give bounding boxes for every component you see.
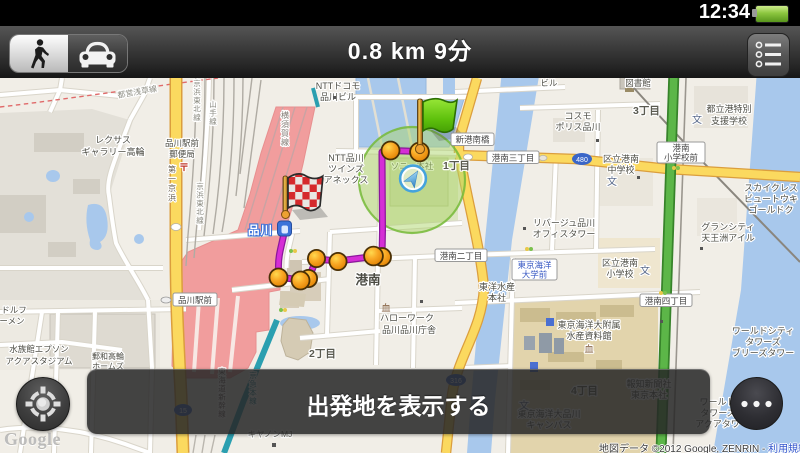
svg-text:東京海洋: 東京海洋 <box>517 260 552 270</box>
svg-text:小学校: 小学校 <box>606 268 633 279</box>
svg-text:港南二丁目: 港南二丁目 <box>440 251 483 261</box>
svg-text:第一京浜: 第一京浜 <box>168 164 176 203</box>
svg-text:1丁目: 1丁目 <box>443 160 470 172</box>
svg-text:京浜東北線: 京浜東北線 <box>196 182 204 225</box>
svg-text:NTTドコモ: NTTドコモ <box>316 81 361 91</box>
svg-text:3丁目: 3丁目 <box>633 105 660 117</box>
svg-text:ブリーズタワー: ブリーズタワー <box>732 347 795 358</box>
svg-text:水産資料館: 水産資料館 <box>566 330 611 341</box>
svg-text:東京海洋大附属: 東京海洋大附属 <box>557 319 620 330</box>
svg-text:中学校: 中学校 <box>607 164 634 175</box>
svg-text:ーメン: ーメン <box>0 316 25 326</box>
svg-text:ギャラリー高輪: ギャラリー高輪 <box>81 146 144 157</box>
svg-text:品川品川庁舎: 品川品川庁舎 <box>382 325 436 335</box>
svg-text:山手線: 山手線 <box>209 100 217 126</box>
svg-text:区立港南: 区立港南 <box>603 153 639 164</box>
svg-text:品川駅前: 品川駅前 <box>165 138 200 148</box>
svg-text:コスモ: コスモ <box>564 111 591 121</box>
svg-text:図書館: 図書館 <box>625 78 651 88</box>
svg-text:2丁目: 2丁目 <box>309 348 336 360</box>
svg-text:オフィスタワー: オフィスタワー <box>533 229 596 239</box>
svg-text:水族館エプソン: 水族館エプソン <box>9 344 69 354</box>
svg-text:NTT品川: NTT品川 <box>328 153 364 163</box>
svg-text:ドルフ: ドルフ <box>1 305 27 315</box>
svg-text:天王洲アイル: 天王洲アイル <box>701 233 755 243</box>
svg-text:郵和高輪: 郵和高輪 <box>92 351 124 361</box>
svg-text:港南: 港南 <box>672 143 689 153</box>
svg-text:文: 文 <box>692 113 702 126</box>
svg-text:ワールドシティ: ワールドシティ <box>732 326 794 336</box>
svg-text:アネックス: アネックス <box>324 175 369 185</box>
svg-text:レクサス: レクサス <box>95 135 131 145</box>
svg-text:ツインズ: ツインズ <box>328 163 364 174</box>
svg-text:ポリス品川: ポリス品川 <box>555 122 600 132</box>
svg-text:品川ビル: 品川ビル <box>320 92 356 102</box>
svg-text:文: 文 <box>640 264 650 277</box>
svg-text:港南三丁目: 港南三丁目 <box>492 153 535 163</box>
svg-text:リバージュ品川: リバージュ品川 <box>533 218 595 228</box>
svg-text:港南四丁目: 港南四丁目 <box>645 296 688 306</box>
svg-text:品川: 品川 <box>248 223 273 237</box>
svg-text:大学前: 大学前 <box>522 270 548 280</box>
svg-text:ビュートウキ: ビュートウキ <box>744 194 798 204</box>
svg-text:ゴールドク: ゴールドク <box>748 204 793 215</box>
svg-text:スカイクレス: スカイクレス <box>744 183 798 193</box>
svg-text:区立港南: 区立港南 <box>602 257 638 268</box>
svg-text:血: 血 <box>381 302 390 313</box>
svg-text:郵便局: 郵便局 <box>169 149 195 159</box>
svg-text:都立港特別: 都立港特別 <box>706 103 751 114</box>
svg-text:血: 血 <box>584 343 593 354</box>
svg-text:港南: 港南 <box>355 272 381 287</box>
svg-text:新港南橋: 新港南橋 <box>455 135 490 145</box>
svg-text:480: 480 <box>576 157 588 164</box>
svg-text:支援学校: 支援学校 <box>711 115 747 126</box>
svg-text:京浜東北線: 京浜東北線 <box>193 79 201 122</box>
svg-text:横須賀線: 横須賀線 <box>281 110 289 147</box>
svg-text:本社: 本社 <box>488 292 506 303</box>
svg-text:東洋水産: 東洋水産 <box>479 281 515 292</box>
svg-text:〒: 〒 <box>179 162 189 174</box>
svg-text:アクアスタジアム: アクアスタジアム <box>6 356 73 366</box>
svg-text:グランシティ: グランシティ <box>701 221 754 232</box>
svg-text:小学校前: 小学校前 <box>664 153 699 163</box>
svg-text:ビル: ビル <box>540 78 558 88</box>
svg-text:タワーズ: タワーズ <box>745 336 781 347</box>
svg-text:ハローワーク: ハローワーク <box>380 313 434 323</box>
svg-text:文: 文 <box>607 175 617 188</box>
svg-text:品川駅前: 品川駅前 <box>178 295 213 305</box>
